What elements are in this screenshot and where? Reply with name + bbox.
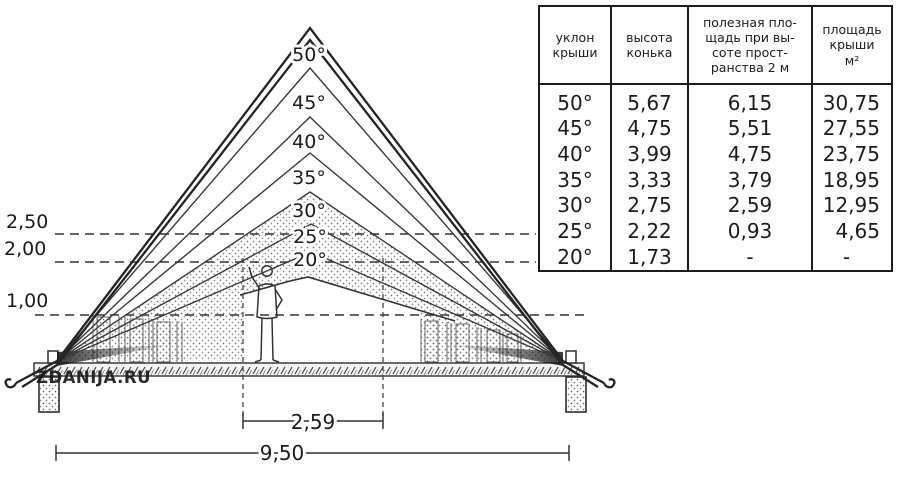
table-cell: 30,75	[813, 85, 891, 115]
table-cell: 4,65	[813, 218, 891, 244]
table-cell: 4,75	[689, 141, 813, 167]
table-cell: -	[689, 244, 813, 270]
angle-label-50: 50°	[292, 44, 326, 66]
table-header-slope: уклон крыши	[540, 7, 612, 85]
dim-9-50-label: 9,50	[260, 441, 305, 465]
table-cell: 20°	[540, 244, 612, 270]
height-mark-1-00: 1,00	[6, 290, 48, 312]
height-mark-2-50: 2,50	[6, 211, 48, 233]
table-cell: -	[813, 244, 891, 270]
right-gutter-hook	[604, 379, 614, 387]
table-cell: 27,55	[813, 115, 891, 141]
table-cell: 4,75	[612, 115, 689, 141]
table-header-roof-area: площадь крыши м²	[813, 7, 891, 85]
height-mark-2-00: 2,00	[4, 238, 46, 260]
table-cell: 3,33	[612, 167, 689, 193]
table-cell: 3,79	[689, 167, 813, 193]
table-cell: 50°	[540, 85, 612, 115]
table-cell: 23,75	[813, 141, 891, 167]
angle-label-40: 40°	[292, 131, 326, 153]
watermark-text: ZDANIJA.RU	[36, 368, 151, 387]
table-cell: 12,95	[813, 193, 891, 219]
angle-label-25: 25°	[293, 226, 327, 248]
left-gutter-hook	[6, 379, 16, 387]
table-header-usable: полезная пло- щадь при вы- соте прост- р…	[689, 7, 813, 85]
table-cell: 1,73	[612, 244, 689, 270]
table-cell: 2,75	[612, 193, 689, 219]
table-cell: 35°	[540, 167, 612, 193]
table-cell: 5,67	[612, 85, 689, 115]
table-cell: 6,15	[689, 85, 813, 115]
table-cell: 3,99	[612, 141, 689, 167]
table-cell: 18,95	[813, 167, 891, 193]
table-cell: 5,51	[689, 115, 813, 141]
roof-pitch-diagram-page: 50° 45° 40° 35° 30° 25° 20° 2,50 2,00 1,…	[0, 0, 900, 490]
angle-label-35: 35°	[292, 167, 326, 189]
roof-parameters-table: уклон крыши высота конька полезная пло- …	[538, 5, 893, 272]
table-cell: 45°	[540, 115, 612, 141]
dim-2-59-label: 2,59	[291, 410, 336, 434]
angle-label-20: 20°	[293, 249, 327, 271]
angle-label-45: 45°	[292, 92, 326, 114]
angle-label-30: 30°	[292, 200, 326, 222]
table-cell: 30°	[540, 193, 612, 219]
table-cell: 40°	[540, 141, 612, 167]
right-wall	[566, 377, 586, 412]
table-cell: 2,59	[689, 193, 813, 219]
table-header-ridge: высота конька	[612, 7, 689, 85]
table-cell: 0,93	[689, 218, 813, 244]
table-cell: 25°	[540, 218, 612, 244]
right-eave-post	[566, 351, 576, 363]
table-cell: 2,22	[612, 218, 689, 244]
